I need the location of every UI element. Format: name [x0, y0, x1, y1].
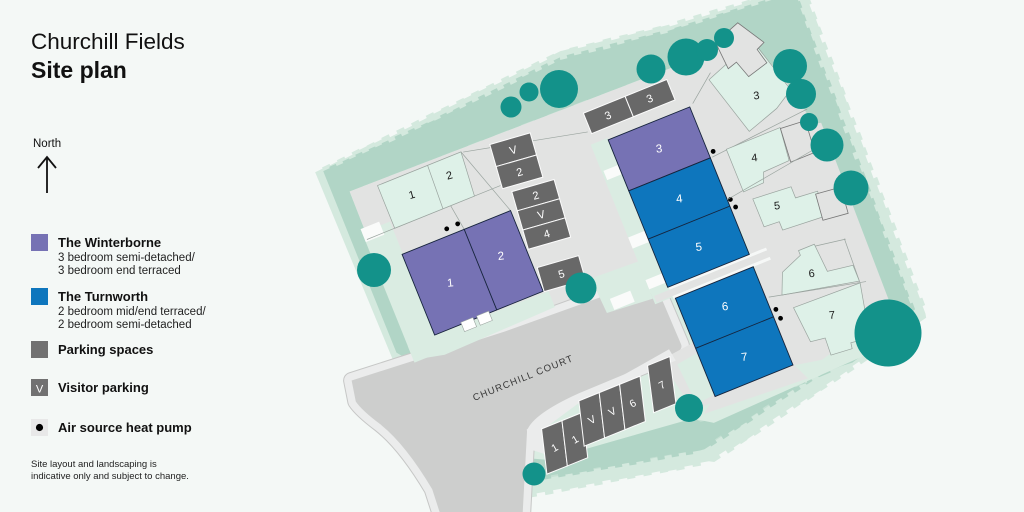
svg-text:Air source heat pump: Air source heat pump	[58, 420, 192, 435]
svg-text:Site layout and landscaping is: Site layout and landscaping is	[31, 459, 157, 470]
svg-text:3 bedroom end terraced: 3 bedroom end terraced	[58, 265, 181, 277]
svg-text:The Winterborne: The Winterborne	[58, 235, 161, 250]
svg-text:Parking spaces: Parking spaces	[58, 342, 153, 357]
svg-text:Churchill Fields: Churchill Fields	[31, 29, 185, 54]
svg-text:Site plan: Site plan	[31, 57, 127, 83]
svg-text:1: 1	[447, 277, 455, 290]
svg-text:2 bedroom mid/end terraced/: 2 bedroom mid/end terraced/	[58, 306, 206, 318]
svg-text:The Turnworth: The Turnworth	[58, 289, 148, 304]
svg-text:5: 5	[773, 200, 780, 213]
svg-text:indicative only and subject to: indicative only and subject to change.	[31, 471, 189, 482]
svg-text:5: 5	[695, 241, 703, 254]
svg-text:2: 2	[497, 250, 505, 263]
svg-text:3 bedroom semi-detached/: 3 bedroom semi-detached/	[58, 252, 196, 264]
svg-text:North: North	[33, 138, 61, 150]
svg-text:7: 7	[828, 309, 835, 322]
svg-text:6: 6	[721, 301, 729, 314]
svg-text:6: 6	[808, 268, 815, 281]
svg-text:3: 3	[753, 90, 760, 103]
svg-text:7: 7	[741, 351, 749, 364]
svg-text:V: V	[36, 384, 44, 396]
svg-text:4: 4	[751, 152, 758, 165]
svg-text:Visitor parking: Visitor parking	[58, 380, 149, 395]
svg-text:2 bedroom semi-detached: 2 bedroom semi-detached	[58, 319, 192, 331]
svg-text:3: 3	[655, 143, 663, 156]
